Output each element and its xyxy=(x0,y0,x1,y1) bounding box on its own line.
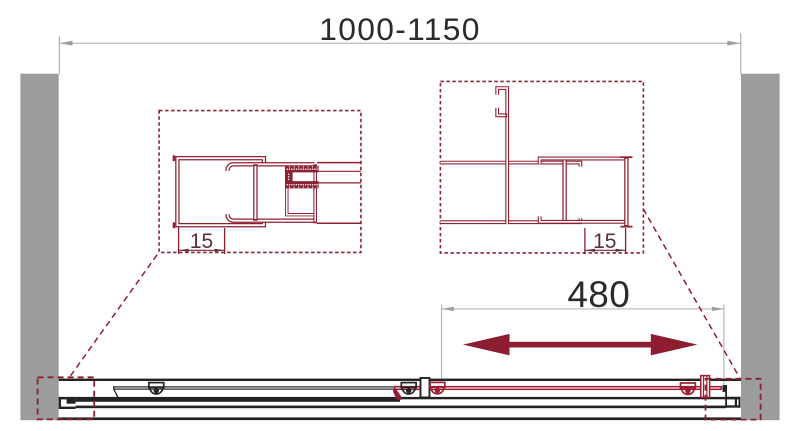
svg-text:480: 480 xyxy=(567,274,630,315)
svg-text:1000-1150: 1000-1150 xyxy=(319,11,480,47)
svg-text:15: 15 xyxy=(190,230,213,253)
svg-text:15: 15 xyxy=(593,230,616,253)
